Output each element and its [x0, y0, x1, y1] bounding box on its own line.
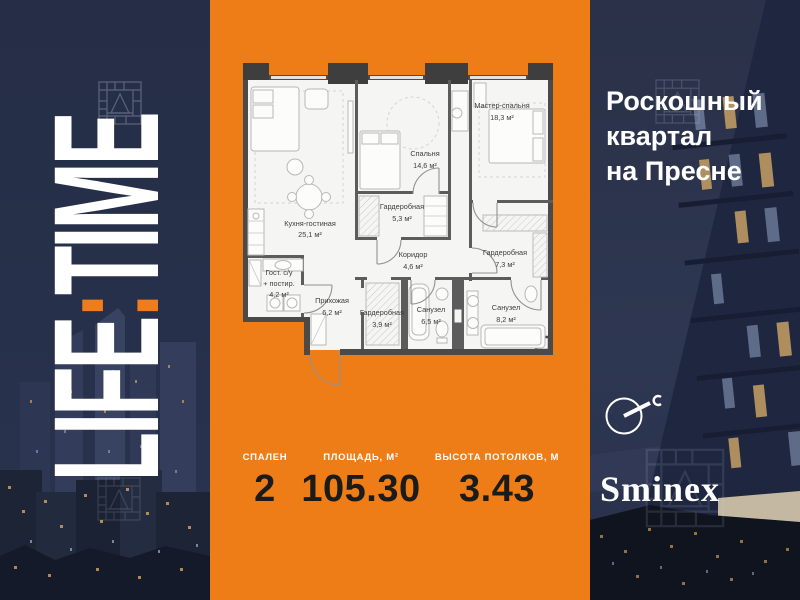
- headline-line-2: квартал: [606, 119, 763, 154]
- room-area-bath65: 6,5 м²: [421, 317, 441, 326]
- room-label-kitchen: Кухня-гостиная: [284, 219, 336, 228]
- room-label-bath65: Санузел: [417, 305, 445, 314]
- north-arrow-icon: [598, 390, 678, 446]
- headline-line-1: Роскошный: [606, 84, 763, 119]
- stat-area-value: 105.30: [296, 468, 426, 511]
- quilt-pattern-icon: [97, 477, 141, 521]
- plumbing-shaft: [454, 309, 462, 323]
- room-label-bath82: Санузел: [492, 303, 520, 312]
- room-area-corridor: 4,6 м²: [403, 262, 423, 271]
- logo-life: LIFE: [22, 319, 190, 482]
- room-area-guestwc: 4,2 м²: [269, 290, 289, 299]
- room-label-bedroom: Спальня: [410, 149, 439, 158]
- lifetime-logo: LIFE:TIME: [31, 115, 181, 482]
- left-brand-panel: LIFE:TIME: [0, 0, 210, 600]
- stat-bedrooms: СПАЛЕН 2: [225, 452, 305, 511]
- room-label-wardrobe53: Гардеробная: [380, 202, 424, 211]
- room-area-hallway: 6,2 м²: [322, 308, 342, 317]
- room-label-guestwc: Гост. с/у: [265, 268, 292, 277]
- room-label-master: Мастер-спальня: [474, 101, 529, 110]
- stat-area: ПЛОЩАДЬ, М² 105.30: [296, 452, 426, 511]
- floorplan-panel: Кухня-гостиная 25,1 м² Спальня 14,6 м² М…: [210, 0, 590, 600]
- stat-ceiling-value: 3.43: [427, 468, 567, 511]
- floorplan: Кухня-гостиная 25,1 м² Спальня 14,6 м² М…: [243, 63, 553, 408]
- apartment-stats: СПАЛЕН 2 ПЛОЩАДЬ, М² 105.30 ВЫСОТА ПОТОЛ…: [210, 452, 590, 522]
- logo-time: TIME: [22, 115, 190, 296]
- stat-bedrooms-label: СПАЛЕН: [225, 452, 305, 463]
- windows: [271, 76, 526, 79]
- headline-line-3: на Пресне: [606, 154, 763, 189]
- room-label-wardrobe39: Гардеробная: [360, 308, 404, 317]
- hallway-furniture: [311, 314, 326, 345]
- room-label-hallway: Прихожая: [315, 296, 349, 305]
- stat-ceiling: ВЫСОТА ПОТОЛКОВ, М 3.43: [427, 452, 567, 511]
- room-area-bedroom: 14,6 м²: [413, 161, 437, 170]
- stat-bedrooms-value: 2: [225, 468, 305, 511]
- room-area-kitchen: 25,1 м²: [298, 230, 322, 239]
- room-area-master: 18,3 м²: [490, 113, 514, 122]
- stat-area-label: ПЛОЩАДЬ, М²: [296, 452, 426, 463]
- room-area-wardrobe39: 3,9 м²: [372, 320, 392, 329]
- apartment-poster: LIFE:TIME: [0, 0, 800, 600]
- room-area-wardrobe73: 7,3 м²: [495, 260, 515, 269]
- room-label-wardrobe73: Гардеробная: [483, 248, 527, 257]
- developer-logo: Sminex: [600, 468, 720, 510]
- room-area-wardrobe53: 5,3 м²: [392, 214, 412, 223]
- room-area-bath82: 8,2 м²: [496, 315, 516, 324]
- headline: Роскошный квартал на Пресне: [606, 84, 763, 189]
- room-label-corridor: Коридор: [399, 250, 428, 259]
- stat-ceiling-label: ВЫСОТА ПОТОЛКОВ, М: [427, 452, 567, 463]
- room-label-guestwc-2: + постир.: [263, 279, 294, 288]
- logo-colon: :: [22, 295, 190, 319]
- right-info-panel: Роскошный квартал на Пресне Sminex: [590, 0, 800, 600]
